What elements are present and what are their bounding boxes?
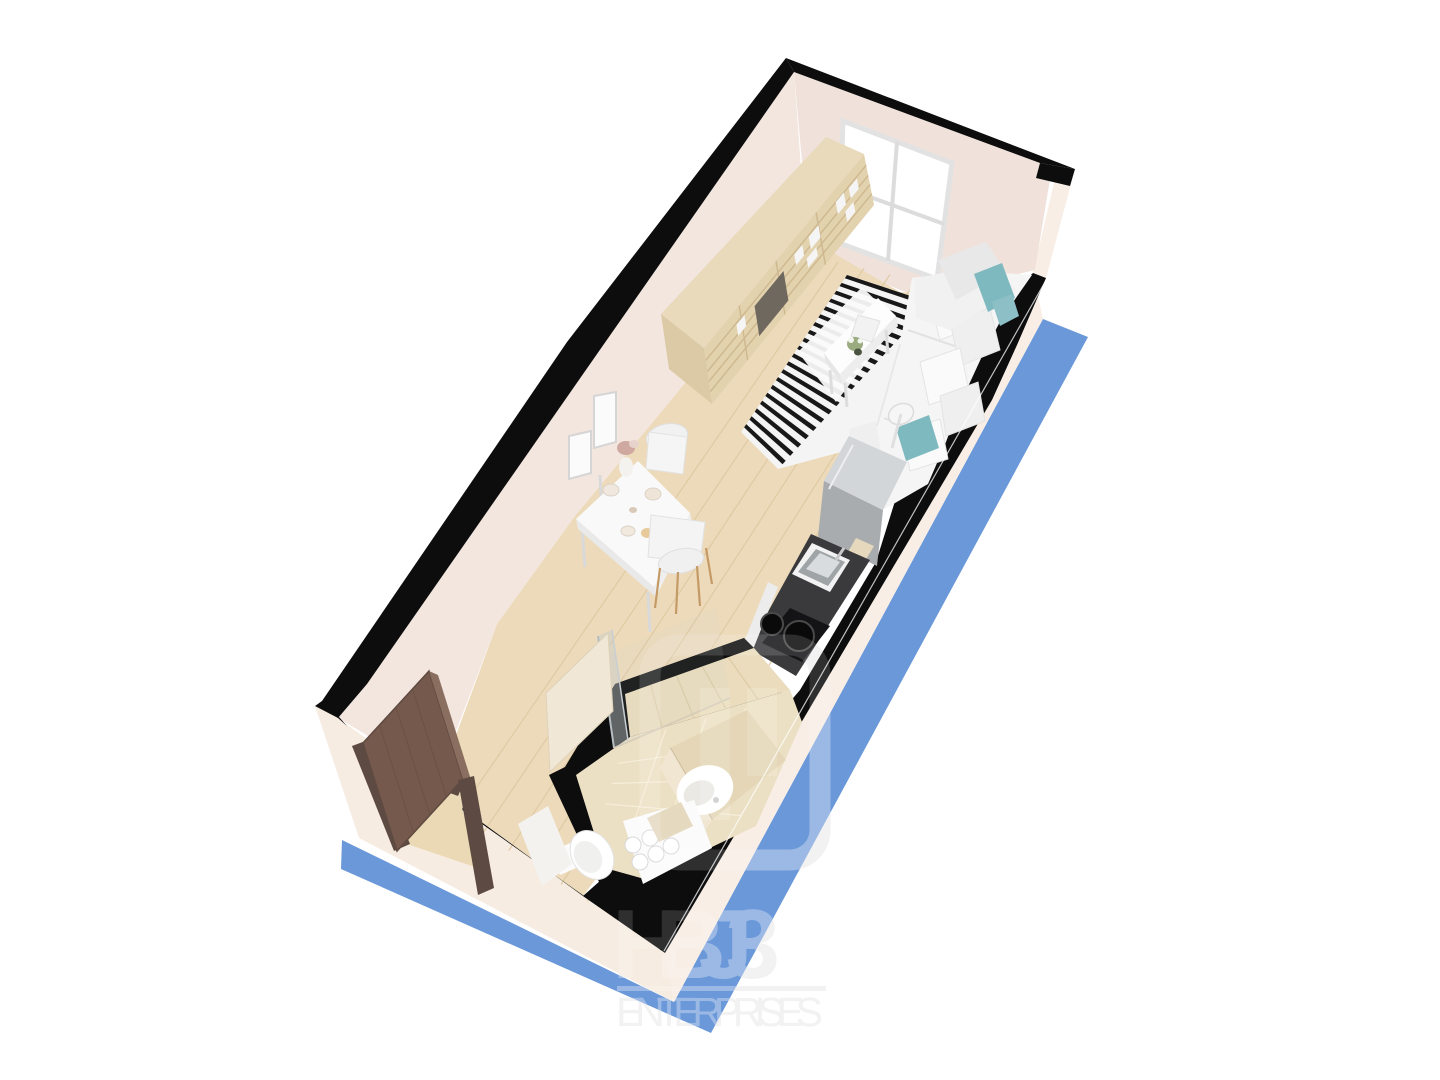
svg-text:HBJ3: HBJ3 (612, 889, 780, 999)
svg-text:ENTERPRISES: ENTERPRISES (616, 989, 823, 1035)
